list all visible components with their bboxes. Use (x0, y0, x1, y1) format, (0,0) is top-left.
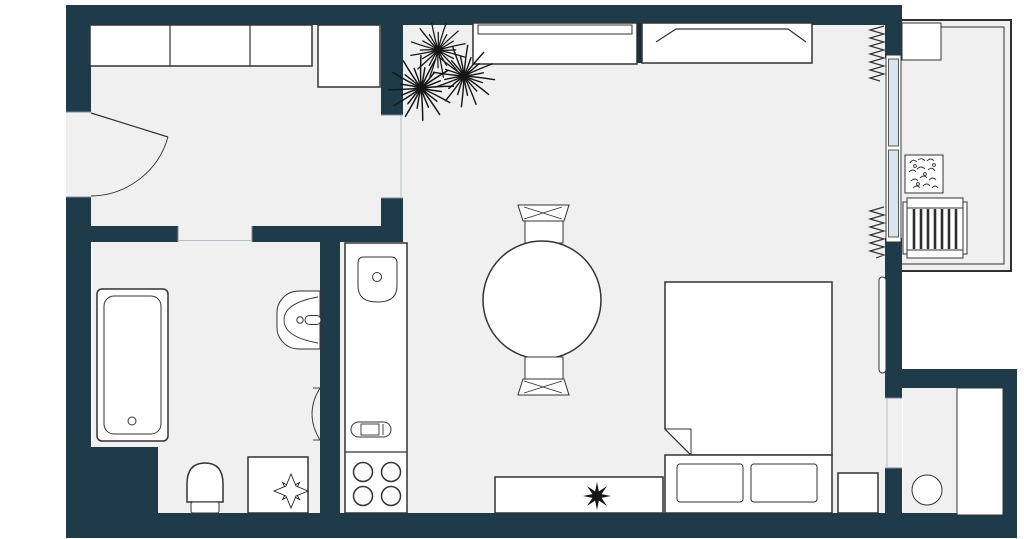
laundry-basin (912, 475, 942, 505)
dining-table (483, 241, 601, 359)
radiator (879, 277, 886, 373)
window-pane-bottom (889, 150, 899, 237)
wall-bath-kitchen (320, 242, 340, 513)
doorway-entry (66, 112, 91, 197)
wall-entry-living-bottom (381, 198, 403, 242)
toilet-bowl (187, 463, 223, 502)
chair-seat (525, 221, 563, 243)
doorway-entry-living (381, 115, 403, 198)
bathroom-sink (277, 291, 321, 349)
sink-faucet (305, 316, 321, 325)
radiator-slats (914, 209, 956, 249)
nightstand (838, 473, 878, 513)
doorway-entry-bath (178, 226, 252, 242)
toilet (187, 463, 223, 513)
bathtub-inner (104, 296, 161, 434)
wall-window-top-stub (885, 5, 902, 58)
entry-cabinet (318, 25, 380, 87)
kitchen-sink (358, 257, 397, 302)
balcony-planter (905, 155, 943, 193)
plant-on-tv-stand (583, 482, 611, 510)
tv-stand (495, 477, 663, 513)
burner (382, 487, 401, 506)
burner (354, 463, 373, 482)
storage-cabinet (957, 388, 1003, 515)
bathtub-drain (128, 417, 136, 425)
dining-chair-top (518, 205, 569, 243)
window-pane-top (889, 59, 899, 146)
toilet-tank (191, 502, 219, 513)
chair-seat (525, 357, 563, 379)
wall-left-upper (66, 5, 91, 112)
dining-chair-bottom (518, 357, 569, 395)
burner (354, 487, 373, 506)
entry-closet (90, 25, 312, 66)
wall-storage-right (1003, 369, 1017, 538)
bed (665, 282, 832, 513)
sink-drain (373, 273, 382, 282)
wall-top (66, 5, 902, 25)
wall-entry-living-top (381, 5, 403, 115)
wall-entry-bath-right (252, 226, 403, 242)
wall-corner-step (66, 447, 158, 538)
wall-right-lower (885, 468, 902, 538)
burner (382, 463, 401, 482)
doorway-storage (885, 398, 902, 468)
balcony-shelf (902, 23, 941, 60)
pillow (751, 464, 817, 502)
sofa-back (478, 25, 632, 34)
sink-faucet-knob (297, 317, 303, 323)
bathtub (97, 289, 168, 441)
wall-storage-top (888, 369, 1017, 388)
bathroom-table (248, 457, 308, 513)
wardrobe (642, 23, 812, 63)
pillow (677, 464, 743, 502)
floor-plan-svg (0, 0, 1024, 539)
kitchen (345, 243, 407, 513)
wall-entry-bath-left (66, 226, 178, 242)
sofa (473, 23, 637, 64)
cutting-board (351, 422, 391, 437)
balcony-radiator (903, 198, 967, 258)
floor-plan (0, 0, 1024, 539)
